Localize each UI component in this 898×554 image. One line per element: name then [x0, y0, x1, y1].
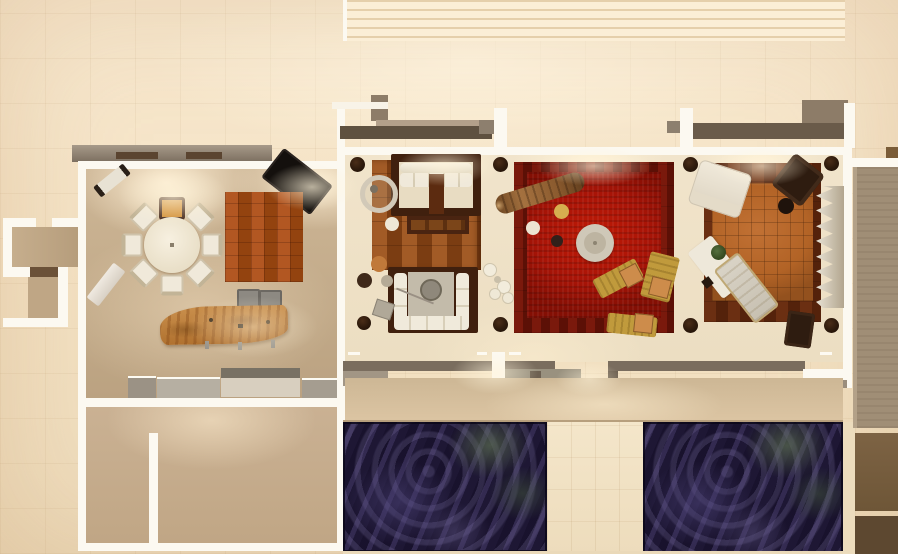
round-ring-table-dot	[593, 241, 597, 245]
table-center-marker	[170, 243, 174, 247]
pouf-white	[526, 221, 540, 235]
ring-chair-center	[370, 185, 378, 193]
right-gray-floor	[853, 167, 898, 428]
alcove-floor-upper	[12, 227, 78, 267]
planter	[683, 157, 698, 172]
gray-stub-right	[667, 121, 680, 133]
coffee-table-blocks	[411, 220, 465, 230]
pouf-gray	[381, 275, 393, 287]
right-strip-box	[886, 147, 898, 158]
pouf-dark	[551, 235, 563, 247]
lamp-glow	[536, 146, 652, 186]
door-lintel-1	[116, 152, 158, 159]
lamp-glow	[398, 146, 490, 186]
lamp-glow	[188, 296, 318, 358]
table-plant	[711, 245, 726, 260]
door-mark	[348, 352, 360, 355]
planter	[357, 316, 371, 330]
ring-chair	[360, 175, 398, 213]
daybed-cushions-bottom	[394, 316, 469, 330]
bottom-wall-gray	[608, 361, 805, 371]
pouf-yellow	[554, 204, 569, 219]
door-post-left	[494, 108, 507, 149]
door-mark	[820, 352, 832, 355]
glass-piece	[489, 288, 501, 300]
glass-piece	[502, 292, 514, 304]
planter	[683, 318, 698, 333]
pool-left	[343, 422, 547, 552]
left-exterior-wall	[78, 161, 86, 551]
center-right-wall	[843, 148, 852, 388]
door-post-far-right	[844, 103, 855, 148]
stairs-left-edge	[343, 0, 347, 41]
dining-chair	[161, 275, 184, 296]
center-top-white-ledge	[332, 102, 388, 109]
dining-top-gray-wall	[72, 145, 272, 162]
gray-stub-left	[479, 120, 494, 134]
lamp-glow	[118, 166, 228, 224]
door-glow	[556, 362, 622, 396]
planter	[824, 318, 839, 333]
annex-divider-wall	[149, 433, 158, 544]
stair-treads	[346, 0, 845, 41]
center-top-gray-band-right	[693, 123, 845, 139]
alcove-mid-wall	[3, 267, 31, 277]
round-side-table	[778, 198, 794, 214]
glass-piece-gray	[494, 276, 501, 283]
sideboard-cabinet	[128, 376, 156, 398]
floorplan-render	[0, 0, 898, 554]
pouf-dark	[357, 273, 372, 288]
alcove-right-wall	[58, 267, 68, 327]
center-top-gray-band-left	[340, 126, 492, 139]
door-lintel-2	[186, 152, 222, 159]
dining-chair	[202, 234, 223, 257]
dining-bottom-wall	[79, 398, 343, 407]
planter	[350, 157, 365, 172]
dark-ottoman	[784, 310, 816, 348]
door-glow	[452, 352, 538, 394]
alcove-floor-lower	[28, 277, 59, 318]
alcove-bottom-wall	[3, 318, 59, 327]
right-strip-wall	[850, 158, 898, 167]
brown-tile	[855, 516, 898, 554]
annex-floor	[86, 407, 337, 543]
brown-tile	[855, 433, 898, 511]
lamp-glow	[714, 146, 810, 186]
sideboard-cabinet	[302, 378, 337, 400]
sideboard-cabinet	[157, 377, 220, 400]
alcove-top-wall	[52, 218, 78, 227]
alcove-door-recess	[30, 267, 58, 277]
lamp-glow	[266, 163, 358, 211]
chaise-cushion	[633, 313, 654, 334]
annex-bottom-wall	[79, 543, 343, 551]
pouf-orange	[371, 256, 387, 272]
middle-deck	[547, 422, 643, 554]
glass-piece	[483, 263, 497, 277]
planter	[824, 156, 839, 171]
gray-step-right	[802, 100, 848, 123]
planter	[493, 157, 508, 172]
sideboard-cabinet-tall	[221, 368, 300, 378]
door-post-right	[680, 108, 693, 149]
pouf-white	[385, 217, 399, 231]
right-deck-strip	[843, 422, 855, 554]
pool-right	[643, 422, 843, 553]
dining-chair	[122, 234, 143, 257]
planter	[493, 317, 508, 332]
sideboard-cabinet-tall-body	[221, 378, 300, 397]
